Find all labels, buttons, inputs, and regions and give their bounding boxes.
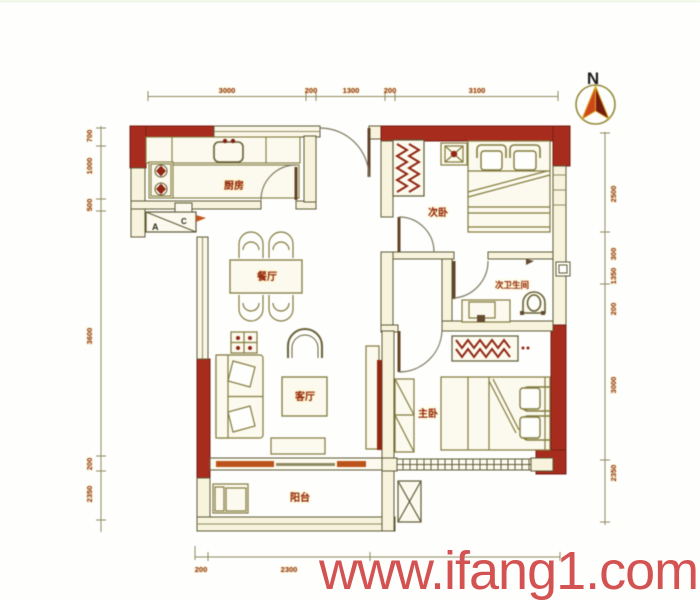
svg-text:A: A [152, 222, 159, 232]
svg-text:300: 300 [609, 248, 618, 261]
svg-text:C: C [181, 217, 187, 226]
svg-text:200: 200 [85, 458, 94, 471]
svg-text:700: 700 [85, 130, 94, 143]
svg-text:2350: 2350 [609, 465, 618, 482]
svg-text:次卧: 次卧 [428, 206, 448, 219]
svg-text:主卧: 主卧 [418, 407, 438, 420]
svg-text:次卫生间: 次卫生间 [495, 280, 529, 290]
svg-text:1000: 1000 [85, 158, 94, 175]
svg-text:200: 200 [305, 86, 318, 95]
svg-text:阳台: 阳台 [290, 491, 310, 504]
svg-text:餐厅: 餐厅 [256, 270, 277, 283]
svg-text:200: 200 [609, 303, 618, 316]
svg-text:2500: 2500 [609, 186, 618, 203]
svg-text:客厅: 客厅 [294, 390, 315, 403]
svg-text:200: 200 [195, 565, 208, 574]
svg-text:200: 200 [384, 86, 397, 95]
svg-text:2300: 2300 [281, 565, 298, 574]
svg-text:2350: 2350 [85, 486, 94, 503]
svg-text:1300: 1300 [343, 86, 360, 95]
svg-text:3100: 3100 [469, 86, 486, 95]
svg-text:3000: 3000 [219, 86, 236, 95]
svg-text:3000: 3000 [609, 377, 618, 394]
svg-text:厨房: 厨房 [224, 179, 244, 192]
svg-text:1350: 1350 [609, 268, 618, 285]
svg-text:3600: 3600 [85, 328, 94, 345]
svg-text:500: 500 [85, 199, 94, 212]
